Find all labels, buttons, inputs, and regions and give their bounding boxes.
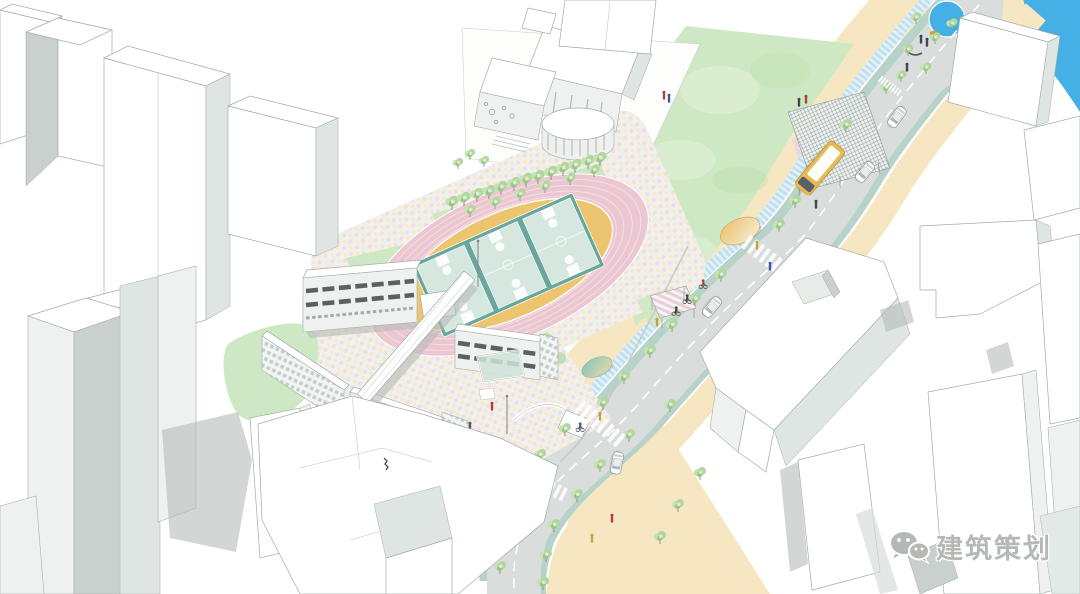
- axonometric-scene: [0, 0, 1080, 594]
- illustration-canvas: 建筑策划: [0, 0, 1080, 594]
- watermark-text: 建筑策划: [936, 527, 1052, 566]
- wechat-logo-icon: [888, 528, 932, 566]
- east-stair-tower: [540, 334, 558, 380]
- watermark: 建筑策划: [888, 527, 1052, 566]
